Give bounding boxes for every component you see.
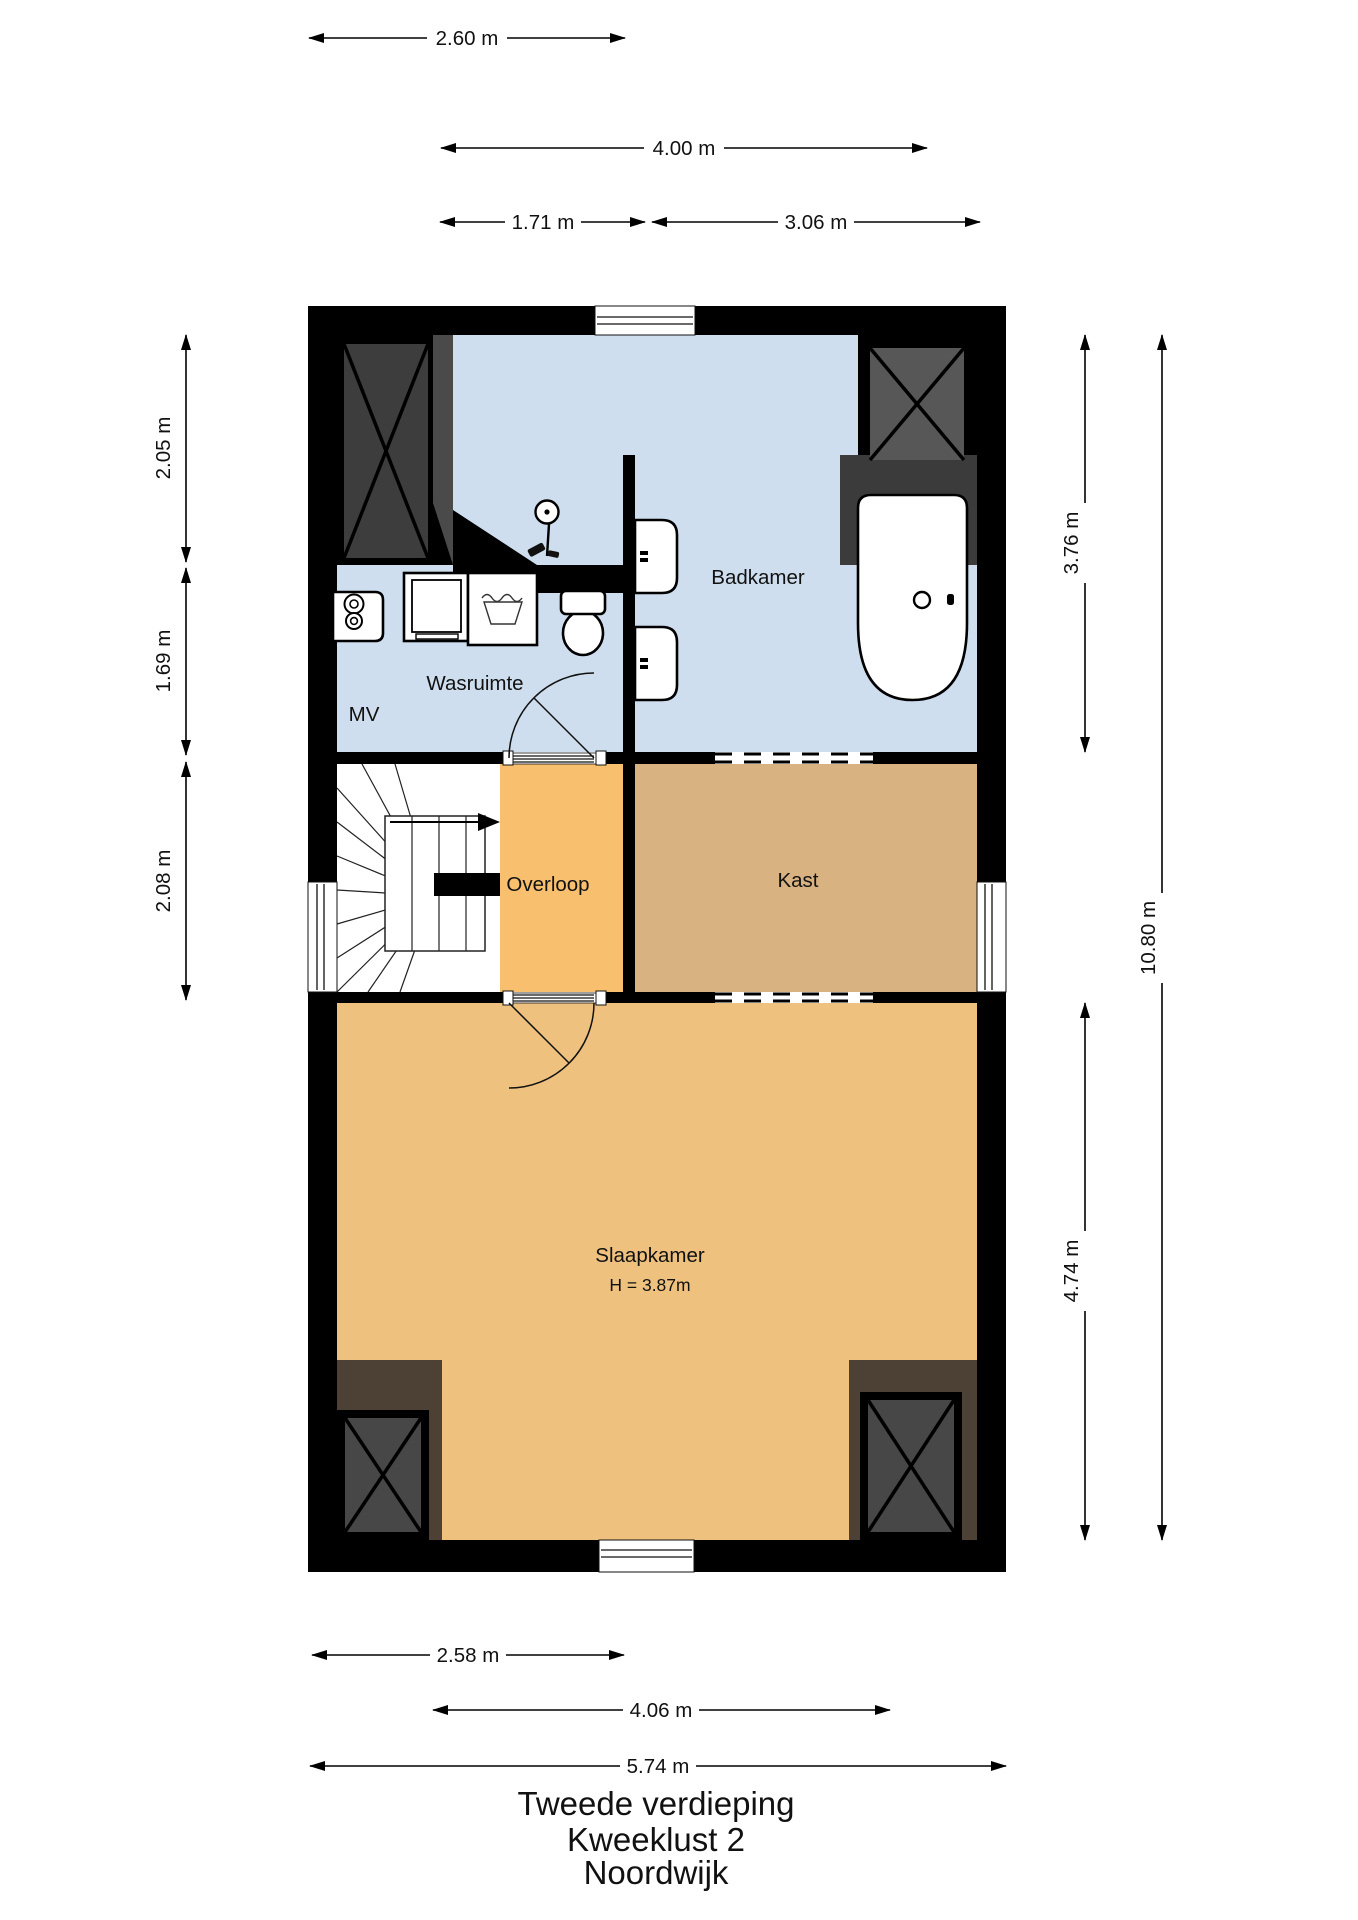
opening-kast-slaapkamer [715, 992, 873, 1003]
dimension-top-1: 2.60 m [309, 26, 625, 50]
door-jamb [596, 751, 606, 765]
door-jamb [596, 991, 606, 1005]
door-jamb [503, 751, 513, 765]
dimension-right-1: 3.76 m [1060, 335, 1097, 752]
toilet-icon [561, 591, 605, 655]
overloop-label: Overloop [506, 873, 589, 896]
kast-label: Kast [777, 869, 818, 892]
sink-icon [635, 627, 677, 700]
boiler-icon [333, 592, 383, 641]
plan-title-floor: Tweede verdieping [517, 1785, 794, 1822]
dimension-top-3: 1.71 m [440, 210, 645, 234]
dimension-left-3: 2.08 m [152, 762, 186, 1000]
dimension-top-4: 3.06 m [652, 210, 980, 234]
south-wall [308, 1540, 599, 1572]
laundry-sink-icon [468, 573, 537, 645]
chimney-top-left [337, 335, 453, 565]
window-top [595, 306, 695, 335]
sink-icon [635, 520, 677, 593]
slaapkamer-height-label: H = 3.87m [609, 1275, 690, 1295]
mv-label: MV [349, 703, 380, 726]
svg-text:2.05 m: 2.05 m [152, 417, 175, 480]
chimney-bottom-right [849, 1360, 977, 1540]
stair-landing-block [434, 873, 500, 896]
svg-text:3.06 m: 3.06 m [785, 211, 848, 234]
badkamer-label: Badkamer [711, 566, 805, 589]
svg-text:1.71 m: 1.71 m [512, 211, 575, 234]
tub-faucet-icon [947, 594, 954, 605]
window-east [977, 882, 1006, 992]
chimney-bottom-left [337, 1360, 442, 1540]
dimension-right-2: 4.74 m [1060, 1003, 1097, 1540]
svg-text:5.74 m: 5.74 m [627, 1755, 690, 1778]
washing-machine-icon [404, 573, 468, 641]
dimension-right-3: 10.80 m [1137, 335, 1174, 1540]
north-wall [308, 306, 595, 335]
svg-text:4.00 m: 4.00 m [653, 137, 716, 160]
svg-text:10.80 m: 10.80 m [1137, 901, 1160, 975]
window-west [308, 882, 337, 992]
svg-text:1.69 m: 1.69 m [152, 630, 175, 693]
opening-badkamer-kast [715, 752, 873, 764]
bathtub-icon [858, 495, 967, 700]
dimension-bottom-1: 2.58 m [312, 1643, 624, 1667]
svg-text:2.60 m: 2.60 m [436, 27, 499, 50]
central-partition-wall [623, 455, 635, 1003]
plan-title-project: Kweeklust 2 [567, 1821, 745, 1858]
slaapkamer-label: Slaapkamer [595, 1244, 705, 1267]
wasruimte-label: Wasruimte [426, 672, 523, 695]
window-south [599, 1540, 694, 1572]
svg-text:2.58 m: 2.58 m [437, 1644, 500, 1667]
door-jamb [503, 991, 513, 1005]
svg-text:4.74 m: 4.74 m [1060, 1240, 1083, 1303]
tub-drain-icon [914, 592, 930, 608]
svg-text:3.76 m: 3.76 m [1060, 512, 1083, 575]
dimension-top-2: 4.00 m [441, 136, 927, 160]
plan-title-city: Noordwijk [584, 1854, 729, 1891]
dimension-left-1: 2.05 m [152, 335, 186, 562]
dimension-bottom-2: 4.06 m [433, 1698, 890, 1722]
dimension-left-2: 1.69 m [152, 568, 186, 755]
svg-text:4.06 m: 4.06 m [630, 1699, 693, 1722]
east-wall [977, 306, 1006, 882]
dimension-bottom-3: 5.74 m [310, 1754, 1006, 1778]
svg-text:2.08 m: 2.08 m [152, 850, 175, 913]
floor-plan-canvas: Badkamer Wasruimte MV Overloop Kast Slaa… [0, 0, 1358, 1920]
